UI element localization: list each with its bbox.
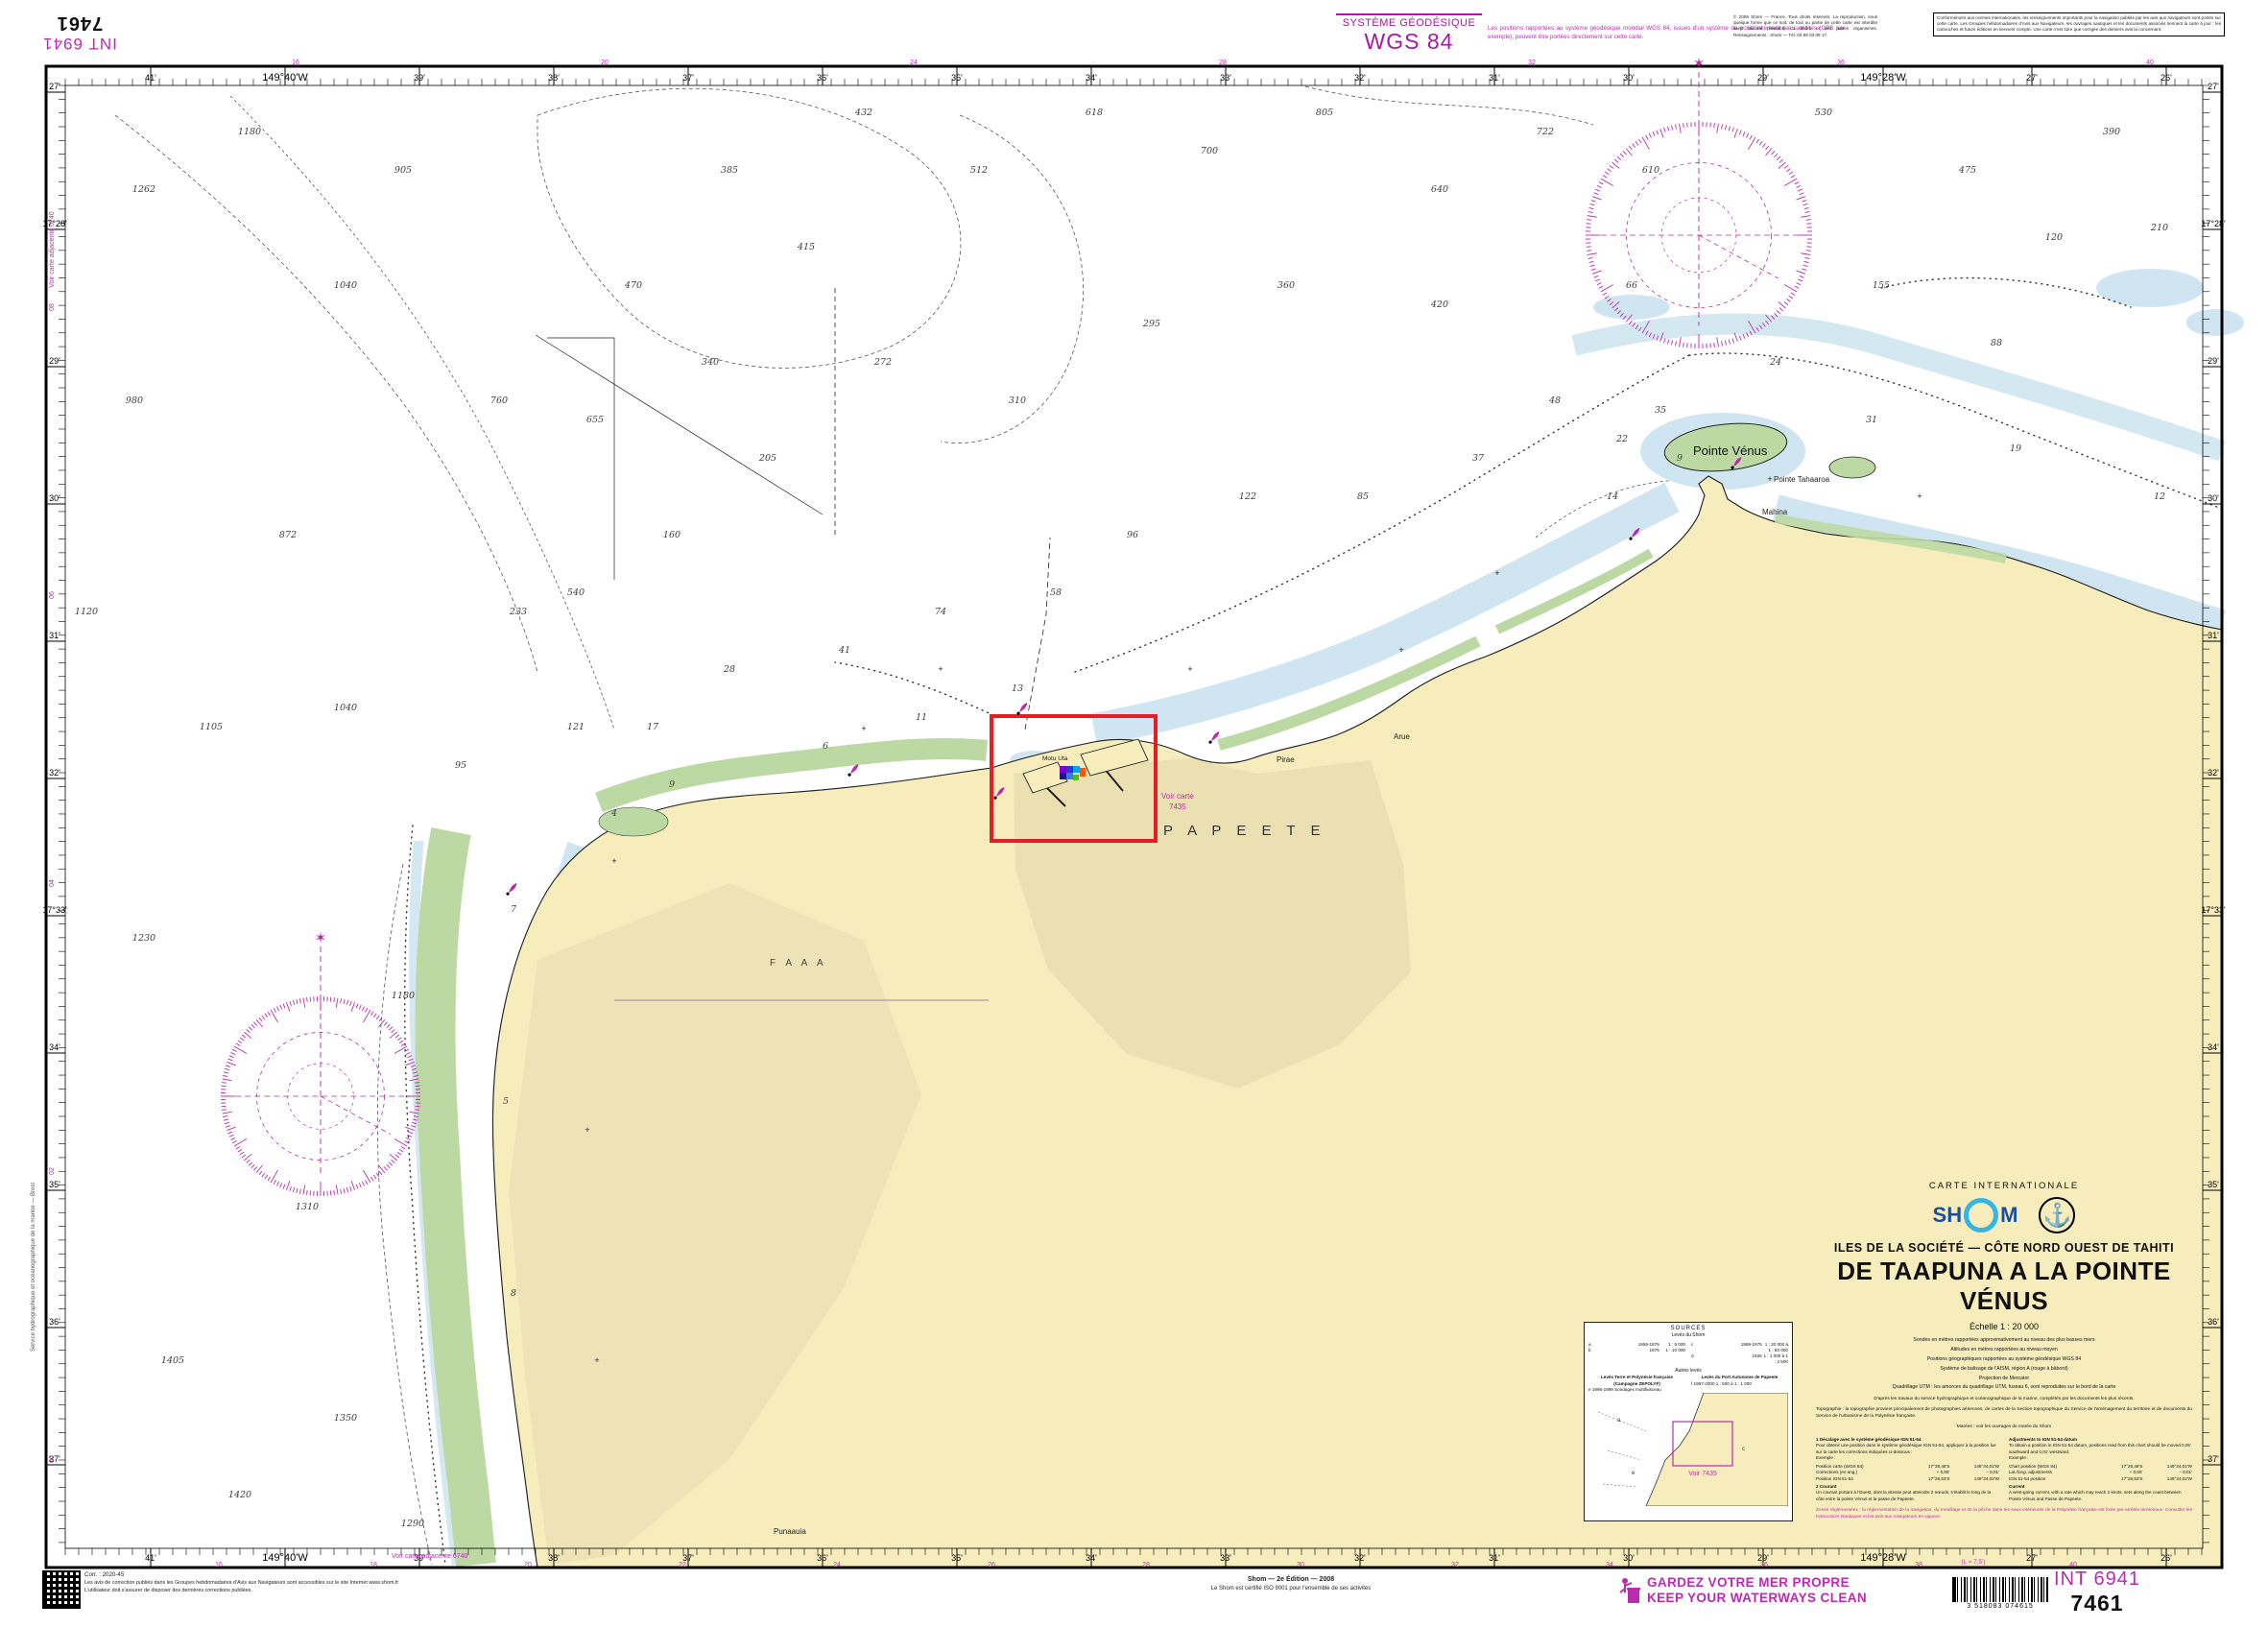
svg-text:a: a (1617, 1418, 1621, 1424)
longitude-label: 27' (2026, 73, 2038, 83)
longitude-label: 149°28'W (1860, 72, 1906, 84)
sources-mini-map: Voir 7435 a e c (1588, 1393, 1788, 1506)
edition-imprint: Shom — 2e Édition — 2008 Le Shom est cer… (1099, 1576, 1483, 1592)
keep-waterways-clean-block: GARDEZ VOTRE MER PROPRE KEEP YOUR WATERW… (1616, 1575, 1867, 1605)
latitude-label: 32' (2208, 768, 2219, 778)
latitude-label: 17°33' (42, 905, 67, 915)
iso-line: Le Shom est certifié ISO 9001 pour l'ens… (1099, 1586, 1483, 1592)
place-label: 7435 (1169, 802, 1186, 811)
longitude-label: 38' (548, 73, 560, 83)
adjacent-chart-note: Voir carte adjacente 6740 (392, 1553, 467, 1560)
latitude-label: 27' (49, 82, 60, 91)
sounding-depth: 48 (1548, 395, 1561, 406)
longitude-label: 38' (548, 1553, 560, 1563)
sounding-depth: 1350 (334, 1413, 357, 1424)
int-number: INT 6941 (2016, 1568, 2179, 1591)
longitude-label: 26' (2161, 73, 2172, 83)
longitude-label: 149°28'W (1860, 1552, 1906, 1564)
correction-label: Corr. : 2020-45 (84, 1570, 401, 1579)
sounding-depth: 540 (567, 587, 585, 598)
datum-note-english: Adjustments to IGN 51-54 datum To obtain… (2009, 1437, 2192, 1502)
datum-note-french: 1 Décalage avec le système géodésique IG… (1816, 1437, 1999, 1502)
sounding-depth: 121 (567, 722, 585, 732)
sounding-depth: 41 (838, 645, 850, 656)
utm-easting-label: 24 (833, 1562, 841, 1568)
side-imprint: Service hydrographique et océanographiqu… (31, 1183, 36, 1352)
longitude-label: 34' (1086, 1553, 1097, 1563)
datum-example-table-en: Chart position (WGS 84)17°28,48'S149°34,… (2009, 1464, 2192, 1482)
sounding-depth: 1420 (228, 1490, 251, 1500)
rock-symbol: + (1767, 474, 1772, 484)
latitude-label: 34' (2208, 1042, 2219, 1052)
sounding-depth: 1230 (132, 933, 155, 944)
longitude-label: 31' (1489, 73, 1500, 83)
sounding-depth: 385 (721, 165, 738, 176)
latitude-label: 31' (49, 631, 60, 640)
utm-easting-label: 32 (1528, 60, 1536, 66)
sounding-depth: 475 (1958, 165, 1976, 176)
utm-northing-label: 06 (49, 591, 56, 599)
topography-note: Topographie : la topographie provient pr… (1816, 1407, 2192, 1421)
sounding-depth: 295 (1142, 319, 1160, 329)
utm-easting-label: 38 (1915, 1562, 1922, 1568)
utm-easting-label: 32 (1451, 1562, 1459, 1568)
rock-symbol: + (1494, 568, 1499, 578)
sounding-depth: 700 (1201, 146, 1218, 156)
chart-number: 7461 (27, 12, 132, 34)
sounding-depth: 610 (1642, 165, 1659, 176)
sounding-depth: 66 (1626, 280, 1637, 291)
longitude-label: 35' (951, 1553, 963, 1563)
north-star-icon: ✶ (1693, 56, 1706, 72)
compass-rose: ✶ (221, 930, 420, 1196)
sources-shom-label: Levés du Shom (1588, 1332, 1788, 1339)
place-label: Pointe Vénus (1693, 443, 1768, 458)
sounding-depth: 340 (702, 357, 719, 368)
longitude-label: 27' (2026, 1553, 2038, 1563)
sounding-depth: 19 (2010, 443, 2021, 454)
table-row: d19261 : 1 000 à 1 : 2 500 (1691, 1353, 1788, 1365)
light-flare-icon (506, 882, 518, 897)
latitude-label: 29' (49, 356, 60, 366)
longitude-label: 33' (1220, 1553, 1231, 1563)
rock-symbol: + (1398, 645, 1403, 655)
sounding-depth: 390 (2103, 127, 2120, 137)
svg-text:c: c (1742, 1447, 1745, 1452)
sounding-depth: 805 (1316, 108, 1333, 118)
sounding-depth: 1290 (401, 1519, 424, 1529)
sounding-depth: 24 (1769, 357, 1781, 368)
sounding-depth: 980 (126, 395, 143, 406)
sounding-depth: 120 (2045, 232, 2063, 243)
sounding-depth: 6 (823, 741, 828, 752)
latitude-label: 36' (49, 1317, 60, 1327)
latitude-label: 37' (2208, 1454, 2219, 1464)
longitude-label: 30' (1623, 1553, 1635, 1563)
geodesy-title: SYSTÈME GÉODÉSIQUE (1336, 17, 1482, 29)
correction-note-1: Les avis de correction publiés dans les … (84, 1579, 401, 1587)
sounding-depth: 9 (669, 779, 675, 790)
soundings-note: Sondes en mètres rapportées approximativ… (1816, 1336, 2192, 1346)
longitude-label: 30' (1623, 73, 1635, 83)
sounding-depth: 1040 (334, 703, 357, 713)
rock-symbol: + (1187, 664, 1192, 674)
datum-example-table-fr: Position carte (WGS 84)17°28,48'S149°34,… (1816, 1464, 1999, 1482)
sounding-depth: 360 (1277, 280, 1295, 291)
sounding-depth: 74 (935, 607, 946, 617)
longitude-label: 29' (1757, 73, 1769, 83)
anchor-emblem-icon: ⚓ (2039, 1197, 2075, 1233)
sounding-depth: 310 (1009, 395, 1026, 406)
latitude-label: 32' (49, 768, 60, 778)
latitude-label: 34' (49, 1042, 60, 1052)
title-block: CARTE INTERNATIONALE SH M ⚓ ILES DE LA S… (1816, 1181, 2192, 1521)
table-row: IGN 51-54 position17°28,53'S149°34,02'W (2009, 1476, 2192, 1482)
sounding-depth: 1040 (334, 280, 357, 291)
sounding-depth: 28 (723, 664, 735, 675)
projection-note: Projection de Mercator (1816, 1375, 2192, 1384)
sounding-depth: 415 (797, 242, 815, 252)
international-standards-note: Conformément aux normes internationales,… (1933, 12, 2225, 36)
place-label: Arue (1394, 732, 1410, 741)
rock-symbol: + (611, 856, 616, 866)
longitude-label: 31' (1489, 1553, 1500, 1563)
copyright-note: © 2008 Shom — France. Tous droits réserv… (1733, 14, 1877, 38)
chart-title: DE TAAPUNA A LA POINTE VÉNUS (1816, 1257, 2192, 1316)
utm-note: Quadrillage UTM : les amorces du quadril… (1816, 1383, 2192, 1393)
longitude-label: 41' (145, 73, 156, 83)
svg-text:e: e (1632, 1471, 1635, 1476)
sounding-depth: 420 (1430, 299, 1448, 310)
utm-northing-label: 08 (49, 303, 56, 311)
sounding-depth: 872 (279, 530, 297, 540)
sounding-depth: 760 (490, 395, 508, 406)
rock-symbol: + (585, 1125, 589, 1135)
utm-easting-label: 20 (524, 1562, 532, 1568)
utm-easting-label: 18 (370, 1562, 377, 1568)
utm-easting-label: 16 (215, 1562, 223, 1568)
latitude-label: 35' (49, 1180, 60, 1189)
carte-internationale-label: CARTE INTERNATIONALE (1816, 1181, 2192, 1191)
sounding-depth: 1120 (75, 607, 98, 617)
sources-note: D'après les travaux du service hydrograp… (1816, 1397, 2192, 1403)
utm-easting-label: 22 (679, 1562, 686, 1568)
utm-easting-label: 40 (2069, 1562, 2077, 1568)
table-row: c1959-19751 : 20 000 à 1 : 50 000 (1691, 1342, 1788, 1353)
sounding-depth: 88 (1991, 338, 2002, 348)
latitude-label: 27' (2208, 82, 2219, 91)
longitude-label: 34' (1086, 73, 1097, 83)
longitude-label: 32' (1354, 73, 1366, 83)
sounding-depth: 14 (1607, 491, 1618, 502)
latitude-label: 36' (2208, 1317, 2219, 1327)
adjacent-chart-note-left: Voir carte adjacente 6740 (49, 211, 56, 287)
sounding-depth: 5 (503, 1096, 509, 1107)
sounding-depth: 31 (1866, 415, 1877, 425)
utm-easting-label: 24 (910, 60, 918, 66)
corrections-block: Corr. : 2020-45 Les avis de correction p… (84, 1570, 401, 1595)
utm-easting-label: 30 (1297, 1562, 1304, 1568)
sounding-depth: 530 (1815, 108, 1832, 118)
place-label: Punaauia (774, 1527, 806, 1536)
altitudes-note: Altitudes en mètres rapportées au niveau… (1816, 1346, 2192, 1355)
sounding-depth: 9 (1677, 453, 1683, 464)
utm-easting-label: 40 (2146, 60, 2154, 66)
scale-extent-note: (L ≈ 7,5') (1961, 1559, 1985, 1566)
sounding-depth: 470 (624, 280, 642, 291)
sounding-depth: 233 (509, 607, 527, 617)
sounding-depth: 22 (1615, 434, 1628, 444)
utm-northing-label: 00 (49, 1455, 56, 1463)
latitude-label: 17°28' (2201, 219, 2226, 228)
chart-scale: Échelle 1 : 20 000 (1816, 1322, 2192, 1331)
int-number: INT 6941 (27, 34, 132, 53)
shom-logo: SH M (1933, 1198, 2018, 1233)
sounding-depth: 37 (1472, 453, 1485, 464)
longitude-label: 41' (145, 1553, 156, 1563)
sounding-depth: 8 (511, 1288, 516, 1299)
utm-easting-label: 20 (601, 60, 609, 66)
sounding-depth: 95 (455, 760, 466, 771)
sounding-depth: 432 (854, 108, 872, 118)
chart-number: 7461 (2016, 1591, 2179, 1616)
mini-map-ref-7435: Voir 7435 (1688, 1471, 1717, 1477)
utm-easting-label: 36 (1760, 1562, 1768, 1568)
latitude-label: 31' (2208, 631, 2219, 640)
north-star-icon: ✶ (315, 930, 327, 946)
longitude-label: 149°40'W (262, 1552, 308, 1564)
utm-easting-label: 28 (1142, 1562, 1150, 1568)
place-label: F A A A (770, 958, 827, 969)
sources-title: SOURCES (1588, 1325, 1788, 1332)
longitude-label: 36' (817, 1553, 828, 1563)
place-label: Motu Uta (1042, 755, 1068, 762)
tides-note: Marées : voir les ouvrages de marée du S… (1816, 1424, 2192, 1431)
keep-clean-en: KEEP YOUR WATERWAYS CLEAN (1647, 1591, 1867, 1606)
shom-logo-m: M (2000, 1203, 2017, 1228)
longitude-label: 26' (2161, 1553, 2172, 1563)
sounding-depth: 1105 (200, 722, 223, 732)
sources-table-right: c1959-19751 : 20 000 à 1 : 50 000d19261 … (1691, 1342, 1788, 1366)
sounding-depth: 1262 (132, 184, 155, 195)
longitude-label: 39' (414, 73, 425, 83)
geodetic-datum-note: SYSTÈME GÉODÉSIQUE WGS 84 (1336, 13, 1482, 55)
sounding-depth: 1180 (392, 991, 415, 1001)
sources-table-left: a1959-19791 : 5 000b19791 : 10 000 (1588, 1342, 1685, 1366)
correction-note-2: L'utilisateur doit s'assurer de disposer… (84, 1587, 401, 1594)
sounding-depth: 11 (916, 712, 927, 723)
corner-chart-number-top-left: INT 6941 7461 (27, 12, 132, 53)
sounding-depth: 205 (758, 453, 776, 464)
sounding-depth: 155 (1873, 280, 1890, 291)
place-label: P A P E E T E (1163, 823, 1325, 839)
rock-symbol: + (594, 1355, 599, 1365)
sounding-depth: 35 (1655, 405, 1666, 416)
sounding-depth: 85 (1357, 491, 1369, 502)
positions-note: Positions géographiques rapportées au sy… (1816, 1355, 2192, 1365)
utm-easting-label: 16 (292, 60, 299, 66)
trash-bin-icon (1616, 1576, 1641, 1605)
keep-clean-fr: GARDEZ VOTRE MER PROPRE (1647, 1575, 1867, 1591)
rock-symbol: + (1917, 491, 1922, 501)
sounding-depth: 96 (1127, 530, 1138, 540)
buoyage-note: Système de balisage de l'AISM, région A … (1816, 1365, 2192, 1375)
sounding-depth: 122 (1239, 491, 1256, 502)
light-flare-icon (1016, 702, 1029, 716)
longitude-label: 37' (682, 73, 694, 83)
longitude-label: 35' (951, 73, 963, 83)
qr-code (42, 1570, 81, 1609)
longitude-label: 32' (1354, 1553, 1366, 1563)
utm-easting-label: 36 (1837, 60, 1845, 66)
sounding-depth: 272 (873, 357, 892, 368)
longitude-label: 36' (817, 73, 828, 83)
utm-easting-label: 34 (1606, 1562, 1613, 1568)
utm-northing-label: 04 (49, 879, 56, 887)
sounding-depth: 4 (610, 808, 617, 819)
sounding-depth: 1310 (296, 1202, 319, 1212)
sounding-depth: 160 (663, 530, 680, 540)
table-row: b19791 : 10 000 (1588, 1348, 1685, 1353)
place-label: Voir carte (1161, 792, 1194, 801)
geodesy-datum: WGS 84 (1336, 29, 1482, 55)
region-title: ILES DE LA SOCIÉTÉ — CÔTE NORD OUEST DE … (1816, 1241, 2192, 1255)
sounding-depth: 722 (1537, 127, 1554, 137)
corner-chart-number-bottom-right: INT 6941 7461 (2016, 1568, 2179, 1616)
sources-diagram: SOURCES Levés du Shom a1959-19791 : 5 00… (1584, 1322, 1793, 1521)
latitude-label: 35' (2208, 1180, 2219, 1189)
longitude-label: 33' (1220, 73, 1231, 83)
sounding-depth: 17 (647, 722, 659, 732)
shom-logo-ring (1964, 1198, 1998, 1233)
latitude-label: 29' (2208, 356, 2219, 366)
sounding-depth: 618 (1086, 108, 1103, 118)
regulated-zones-note: Zones réglementées : la réglementation d… (1816, 1508, 2192, 1521)
sounding-depth: 1405 (161, 1355, 184, 1366)
place-label: Pointe Tahaaroa (1774, 475, 1830, 484)
latitude-label: 30' (2208, 493, 2219, 503)
sources-other-label: Autres levés (1588, 1368, 1788, 1375)
rock-symbol: + (938, 664, 943, 674)
sounding-depth: 655 (586, 415, 604, 425)
sounding-depth: 12 (2154, 491, 2165, 502)
place-label: Mahina (1762, 508, 1788, 516)
utm-northing-label: 02 (49, 1167, 56, 1175)
sounding-depth: 1180 (238, 127, 261, 137)
sounding-depth: 7 (511, 904, 517, 915)
place-label: Pirae (1277, 755, 1295, 764)
sounding-depth: 905 (394, 165, 412, 176)
shom-logo-sh: SH (1933, 1203, 1963, 1228)
sounding-depth: 210 (2150, 223, 2168, 233)
utm-easting-label: 28 (1219, 60, 1227, 66)
longitude-label: 149°40'W (262, 72, 308, 84)
utm-easting-label: 26 (988, 1562, 995, 1568)
edition-line: Shom — 2e Édition — 2008 (1099, 1576, 1483, 1583)
latitude-label: 17°33' (2201, 905, 2226, 915)
sounding-depth: 58 (1050, 587, 1062, 598)
sounding-depth: 512 (970, 165, 988, 176)
rock-symbol: + (861, 724, 866, 733)
sounding-depth: 13 (1012, 683, 1023, 694)
latitude-label: 30' (49, 493, 60, 503)
sounding-depth: 640 (1431, 184, 1448, 195)
table-row: Position IGN 51-5417°28,53'S149°34,02'W (1816, 1476, 1999, 1482)
